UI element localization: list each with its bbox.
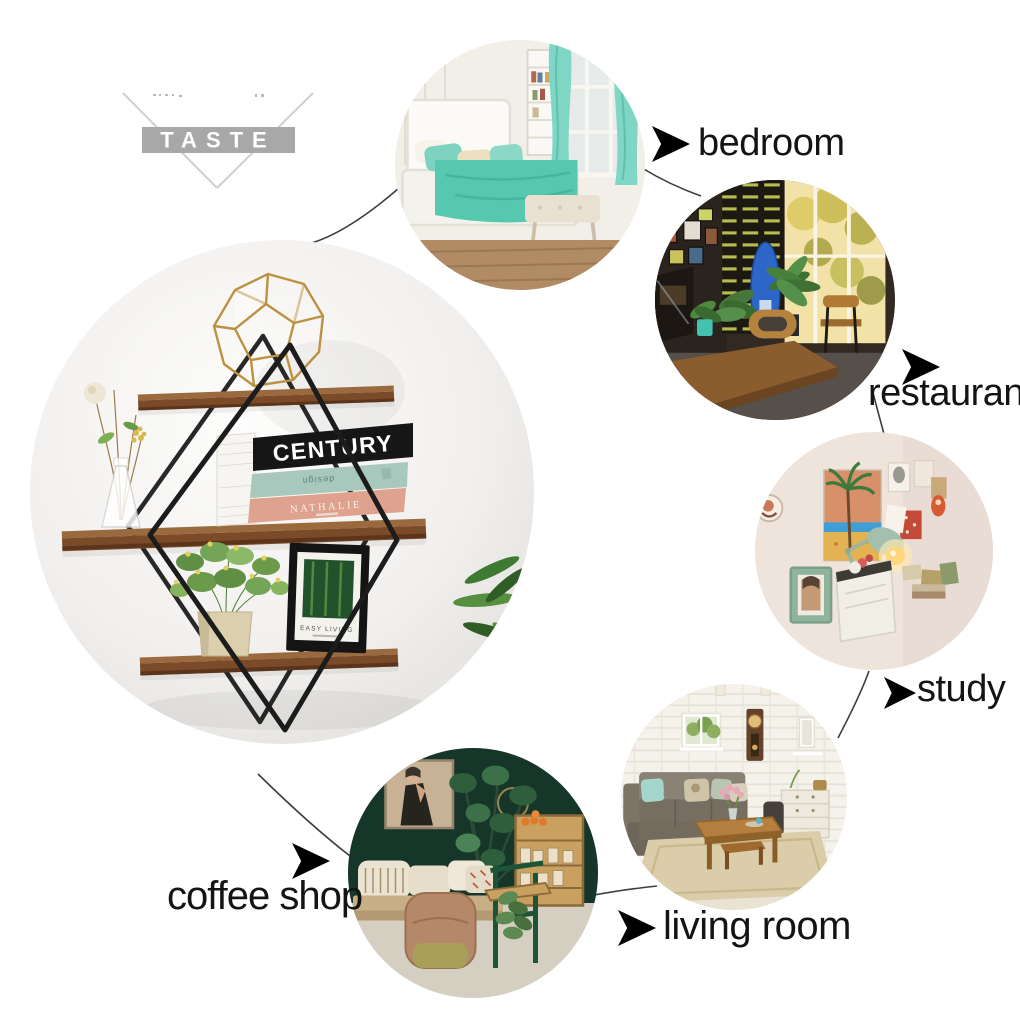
picture-frame: EASY LIVING [286,543,370,654]
watermark-text: TASTE [160,128,275,153]
living-room-label-text: living room [663,906,851,946]
curtain-left [549,40,572,175]
living-room-photo-circle [621,684,847,910]
display-case [655,266,693,343]
pointer-arrow-icon [652,126,690,162]
study-photo-circle [755,432,993,670]
study-label-text: study [917,670,1005,708]
living-window [680,713,723,750]
watermark-tiny-marks [153,94,264,97]
bamboo-photo [302,559,354,619]
restaurant-photo-circle [655,180,895,420]
coffee-shop-label-text: coffee shop [167,876,362,916]
line-coffeeshop-to-main [258,774,350,856]
line-study-to-livingroom [838,671,869,738]
coffee-shop-photo-circle [348,748,598,998]
pompom-flower [84,382,106,404]
bedroom-label-text: bedroom [698,124,844,162]
brand-watermark: TASTE [115,85,325,210]
pointer-arrow-icon [884,677,916,709]
armchair [406,893,476,968]
curtain-right [614,40,639,185]
portrait-painting [386,761,454,829]
wall-plate [756,495,782,521]
wall-clock [746,709,763,761]
product-photo-circle: CENTURY design NATHALIE [30,240,534,744]
bedroom-photo-circle [395,40,645,290]
line-bedroom-to-restaurant [642,168,701,196]
teal-pot [697,319,713,336]
pointer-arrow-icon [618,910,656,946]
line-livingroom-to-coffeeshop [589,886,657,896]
matryoshka [931,495,945,516]
product-scenes-infographic: TASTE [0,0,1020,1020]
restaurant-label-text: restaurant [868,374,1020,412]
